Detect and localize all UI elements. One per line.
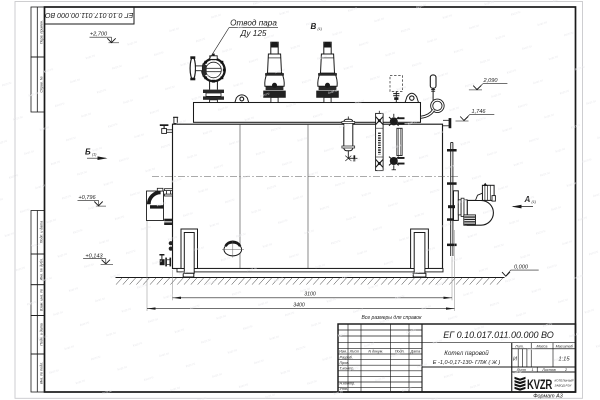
svg-text:(1): (1) [318, 27, 322, 31]
svg-text:1,746: 1,746 [472, 109, 487, 115]
svg-text:ЕГ 0.10.017.011.00.000 ВО: ЕГ 0.10.017.011.00.000 ВО [45, 11, 134, 20]
svg-text:Н.контр.: Н.контр. [340, 381, 356, 385]
svg-text:ЕГ 0.10.017.011.00.000 ВО: ЕГ 0.10.017.011.00.000 ВО [443, 330, 554, 340]
svg-text:(1): (1) [532, 200, 536, 204]
svg-text:3100: 3100 [304, 292, 316, 298]
svg-text:Формат А3: Формат А3 [533, 394, 563, 400]
svg-text:N докум.: N докум. [368, 349, 383, 353]
svg-text:Масса: Масса [537, 344, 548, 348]
svg-text:3400: 3400 [293, 302, 305, 308]
svg-text:Листов: Листов [541, 368, 556, 372]
svg-text:Инв. № подл.: Инв. № подл. [40, 362, 44, 384]
svg-text:2: 2 [564, 368, 567, 372]
svg-text:Б: Б [85, 147, 91, 156]
svg-text:Масштаб: Масштаб [556, 344, 574, 348]
svg-text:1: 1 [531, 368, 533, 372]
svg-text:Лит.: Лит. [514, 344, 524, 348]
svg-text:Изм.: Изм. [339, 349, 347, 353]
svg-text:И: И [513, 357, 517, 363]
svg-text:Справ. №: Справ. № [40, 76, 44, 92]
svg-text:Все размеры для справок: Все размеры для справок [362, 315, 423, 321]
svg-text:ЗАВОД РЭУ: ЗАВОД РЭУ [555, 384, 573, 388]
svg-text:Пров.: Пров. [340, 361, 350, 365]
svg-text:Перв. примен.: Перв. примен. [40, 20, 44, 44]
svg-text:2,090: 2,090 [483, 78, 499, 84]
svg-text:Лист: Лист [349, 349, 360, 353]
svg-text:(1): (1) [92, 153, 96, 157]
svg-text:Взам. инв. №: Взам. инв. № [40, 289, 44, 311]
svg-text:Дата: Дата [410, 349, 421, 353]
svg-text:Инв. № дубл.: Инв. № дубл. [40, 258, 44, 280]
svg-text:+2,700: +2,700 [90, 32, 108, 38]
svg-text:KVZR: KVZR [527, 377, 552, 392]
svg-text:Разраб.: Разраб. [340, 355, 353, 359]
svg-text:0,000: 0,000 [514, 265, 529, 271]
svg-text:КОТЕЛЬНЫЙ: КОТЕЛЬНЫЙ [555, 379, 575, 383]
svg-text:Подп. и дата: Подп. и дата [40, 221, 44, 244]
